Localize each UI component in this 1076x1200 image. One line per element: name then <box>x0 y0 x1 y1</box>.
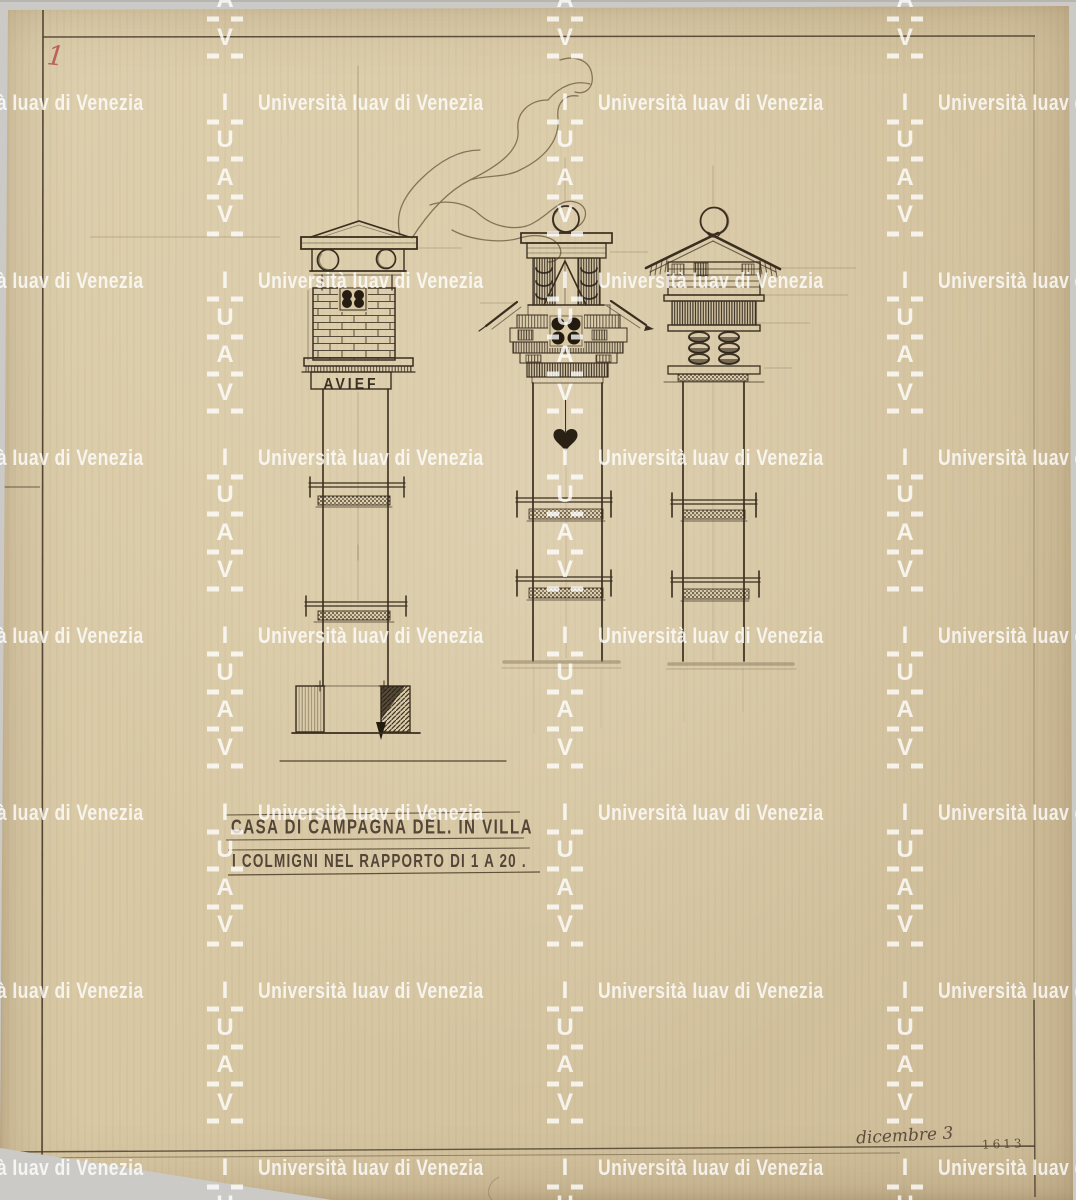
caption-line-1: CASA DI CAMPAGNA DEL. IN VILLA <box>231 816 533 839</box>
inventory-number: 1613 <box>982 1136 1025 1151</box>
watermark-letter: U <box>216 1191 233 1200</box>
caption-line-2: I COLMIGNI NEL RAPPORTO DI 1 A 20 . <box>232 850 527 871</box>
scan-background: CASA DI CAMPAGNA DEL. IN VILLA I COLMIGN… <box>0 0 1076 1200</box>
frame-border <box>0 10 1035 1197</box>
tower-3-elevation <box>646 166 796 722</box>
bottom-pencil-mark <box>488 1177 499 1200</box>
drawing-svg <box>0 0 1076 1200</box>
tower-1-inscription: AVIEF <box>311 374 391 392</box>
page-number: 1 <box>45 40 65 73</box>
paper-sheet: CASA DI CAMPAGNA DEL. IN VILLA I COLMIGN… <box>0 0 1076 1200</box>
tower-1-elevation <box>280 66 506 761</box>
tower-2-elevation <box>479 158 654 733</box>
